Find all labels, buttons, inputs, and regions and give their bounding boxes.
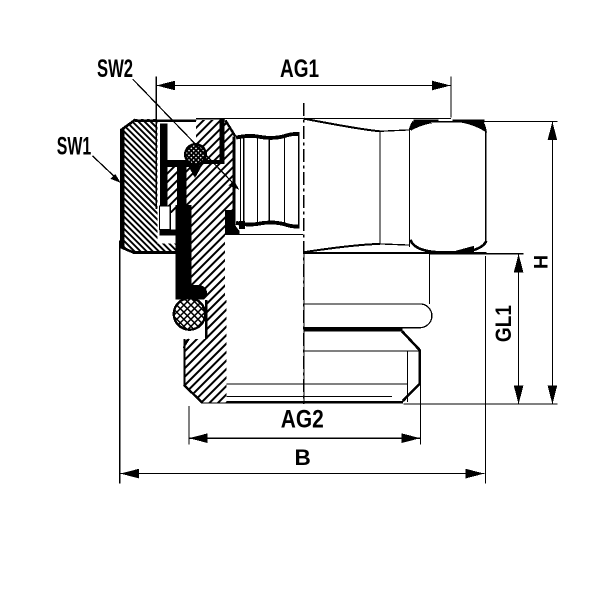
svg-text:SW2: SW2 xyxy=(97,55,133,83)
svg-text:AG2: AG2 xyxy=(281,406,324,434)
svg-text:B: B xyxy=(294,445,310,470)
svg-text:GL1: GL1 xyxy=(491,305,516,342)
svg-text:AG1: AG1 xyxy=(280,55,319,83)
svg-text:H: H xyxy=(531,255,553,269)
svg-text:SW1: SW1 xyxy=(57,133,92,161)
